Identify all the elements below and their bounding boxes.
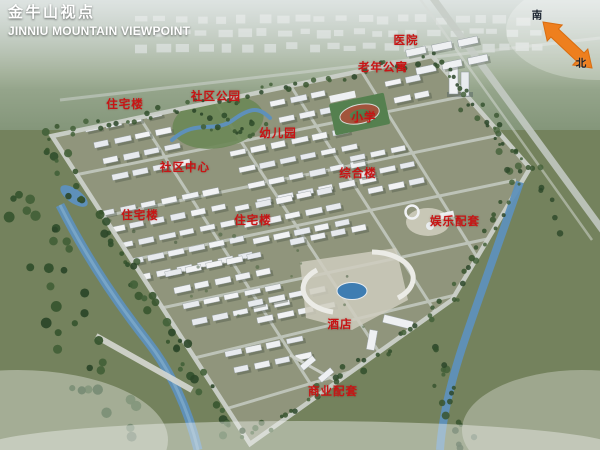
jinniu-aerial-masterplan: 金牛山视点 JINNIU MOUNTAIN VIEWPOINT 南 北 医院老年…: [0, 0, 600, 450]
title-chinese: 金牛山视点: [8, 4, 190, 23]
map-label-primary-school: 小学: [352, 109, 377, 125]
map-label-kindergarten: 幼儿园: [259, 125, 297, 141]
map-label-residential-upper-left: 住宅楼: [106, 96, 144, 112]
aerial-rendering: [0, 0, 600, 450]
map-label-senior-apartments: 老年公寓: [358, 59, 408, 75]
compass-south-label: 南: [532, 8, 543, 23]
map-label-hospital: 医院: [394, 32, 419, 48]
map-label-residential-center: 住宅楼: [234, 212, 272, 228]
map-label-commercial-facilities: 商业配套: [308, 383, 358, 399]
map-label-entertainment-facilities: 娱乐配套: [430, 213, 480, 229]
map-label-hotel: 酒店: [328, 316, 353, 332]
central-lake: [337, 283, 367, 300]
map-label-residential-lower-left: 住宅楼: [121, 207, 159, 223]
map-label-community-park: 社区公园: [191, 88, 241, 104]
title-english: JINNIU MOUNTAIN VIEWPOINT: [8, 24, 190, 39]
map-label-complex-building: 综合楼: [339, 165, 377, 181]
viewpoint-title: 金牛山视点 JINNIU MOUNTAIN VIEWPOINT: [8, 4, 190, 39]
map-label-community-center: 社区中心: [160, 159, 210, 175]
compass-north-label: 北: [576, 56, 587, 71]
